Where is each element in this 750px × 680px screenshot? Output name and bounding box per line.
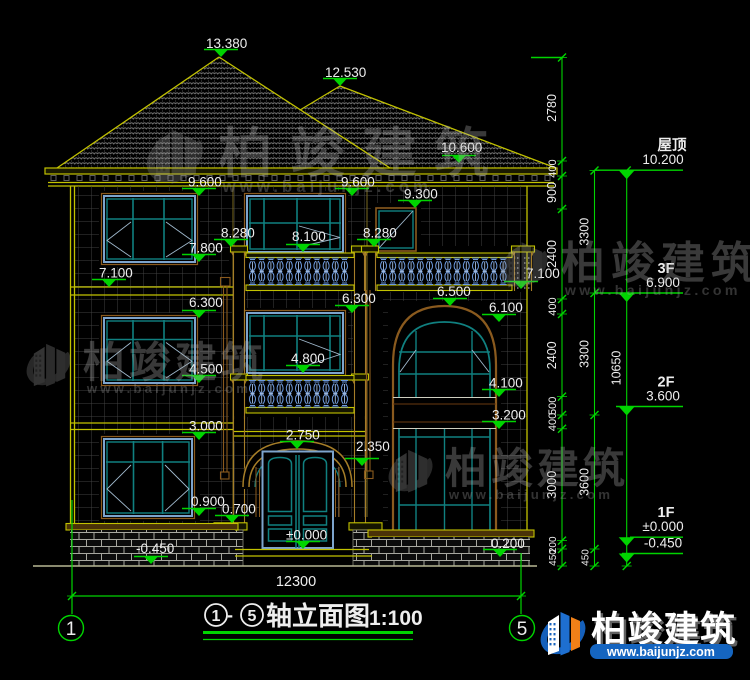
svg-text:www.baijunjz.com: www.baijunjz.com — [564, 283, 741, 299]
svg-text:13.380: 13.380 — [206, 36, 247, 51]
svg-text:±0.000: ±0.000 — [286, 528, 327, 543]
svg-text:2.350: 2.350 — [356, 439, 390, 454]
svg-text:400: 400 — [547, 413, 559, 431]
svg-text:2400: 2400 — [545, 341, 559, 369]
svg-text:1:100: 1:100 — [369, 607, 423, 630]
svg-text:±0.000: ±0.000 — [642, 519, 683, 534]
svg-text:www.baijunjz.com: www.baijunjz.com — [606, 645, 715, 659]
svg-text:5: 5 — [248, 608, 257, 625]
svg-text:柏竣建筑: 柏竣建筑 — [445, 445, 629, 492]
svg-text:2.750: 2.750 — [286, 428, 320, 443]
svg-text:9.600: 9.600 — [188, 175, 222, 190]
svg-text:900: 900 — [545, 182, 559, 203]
svg-text:柏竣建筑: 柏竣建筑 — [561, 239, 750, 288]
svg-text:www.baijunjz.com: www.baijunjz.com — [86, 381, 251, 396]
svg-text:柏竣建筑: 柏竣建筑 — [219, 124, 507, 184]
svg-text:www.baijunjz.com: www.baijunjz.com — [448, 487, 613, 502]
svg-text:400: 400 — [547, 159, 559, 177]
svg-text:3.000: 3.000 — [189, 419, 223, 434]
svg-text:3.200: 3.200 — [492, 408, 526, 423]
svg-text:6.300: 6.300 — [342, 291, 376, 306]
svg-text:1: 1 — [212, 608, 221, 625]
svg-text:10.200: 10.200 — [642, 152, 683, 167]
svg-text:5: 5 — [517, 619, 528, 640]
svg-text:7.100: 7.100 — [99, 266, 133, 281]
svg-text:4.100: 4.100 — [489, 376, 523, 391]
svg-text:10650: 10650 — [610, 351, 624, 386]
svg-text:www.baijunjz.com: www.baijunjz.com — [222, 177, 433, 196]
svg-text:柏竣建筑: 柏竣建筑 — [83, 339, 267, 386]
svg-text:12300: 12300 — [276, 574, 316, 590]
svg-text:400: 400 — [547, 297, 559, 315]
svg-text:450: 450 — [581, 549, 592, 566]
svg-text:6.300: 6.300 — [189, 295, 223, 310]
svg-text:7.800: 7.800 — [189, 241, 223, 256]
svg-text:6.100: 6.100 — [489, 300, 523, 315]
svg-text:4.800: 4.800 — [291, 351, 325, 366]
svg-text:6.500: 6.500 — [437, 284, 471, 299]
svg-text:-: - — [227, 605, 233, 625]
svg-text:2780: 2780 — [545, 94, 559, 122]
svg-text:3300: 3300 — [578, 340, 592, 368]
svg-text:0.900: 0.900 — [191, 494, 225, 509]
svg-text:-0.450: -0.450 — [136, 541, 174, 556]
svg-text:8.280: 8.280 — [221, 226, 255, 241]
svg-text:8.280: 8.280 — [363, 226, 397, 241]
svg-text:500: 500 — [547, 397, 559, 415]
svg-text:12.530: 12.530 — [325, 65, 366, 80]
svg-text:1: 1 — [66, 619, 77, 640]
svg-text:-0.450: -0.450 — [644, 536, 682, 551]
svg-text:3.600: 3.600 — [646, 389, 680, 404]
svg-text:0.200: 0.200 — [491, 536, 525, 551]
svg-text:0.700: 0.700 — [222, 502, 256, 517]
svg-text:450: 450 — [548, 549, 559, 566]
svg-text:轴立面图: 轴立面图 — [266, 601, 370, 631]
svg-text:8.100: 8.100 — [292, 229, 326, 244]
svg-text:柏竣建筑: 柏竣建筑 — [591, 609, 736, 649]
